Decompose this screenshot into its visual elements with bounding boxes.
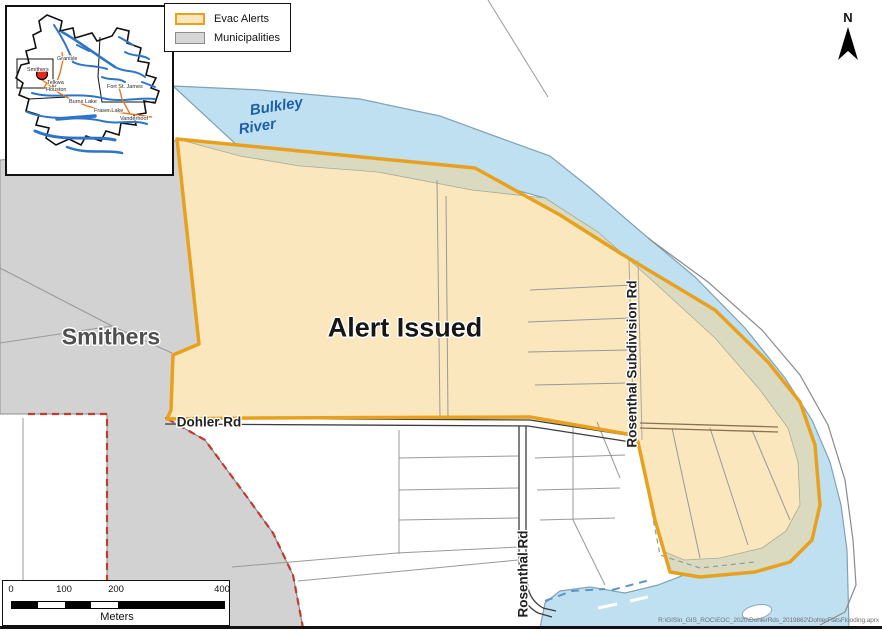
inset-label-vanderhoof: Vanderhoof (120, 116, 149, 122)
scale-tick-0: 0 (8, 584, 13, 595)
map-export: Smithers Granisle Telkwa Houston Fort St… (0, 0, 882, 631)
inset-label-fort-st-james: Fort St. James (107, 84, 143, 90)
evac-alerts-swatch (175, 13, 205, 25)
document-path-text: R:\GISIn_GIS_ROC\EOC_2020\DohlerRds_2019… (639, 617, 879, 624)
north-arrow-icon (837, 26, 859, 62)
map-frame-bottom-border (0, 626, 882, 629)
scale-bar: 0 100 200 400 Meters (2, 580, 230, 626)
inset-label-houston: Houston (46, 87, 67, 93)
inset-label-granisle: Granisle (57, 56, 77, 62)
legend-label: Municipalities (214, 32, 280, 44)
scale-tick-100: 100 (56, 584, 72, 595)
regional-inset-map: Smithers Granisle Telkwa Houston Fort St… (5, 5, 174, 176)
inset-label-fraser-lake: Fraser Lake (94, 108, 123, 114)
evac-alert-polygon (167, 139, 820, 577)
legend-item-municipalities: Municipalities (175, 28, 290, 47)
north-arrow: N (833, 10, 863, 67)
scale-tick-200: 200 (108, 584, 124, 595)
inset-label-burns-lake: Burns Lake (69, 99, 97, 105)
scale-tick-400: 400 (214, 584, 230, 595)
legend-label: Evac Alerts (214, 13, 269, 25)
legend: Evac Alerts Municipalities (164, 3, 291, 52)
scale-unit-label: Meters (100, 611, 134, 623)
municipalities-swatch (175, 32, 205, 44)
scale-bar-segments (11, 601, 225, 609)
legend-item-evac-alerts: Evac Alerts (175, 9, 290, 28)
inset-label-smithers: Smithers (27, 67, 49, 73)
inset-label-telkwa: Telkwa (47, 80, 65, 86)
regional-district-outline (16, 15, 159, 145)
north-label: N (833, 10, 863, 25)
